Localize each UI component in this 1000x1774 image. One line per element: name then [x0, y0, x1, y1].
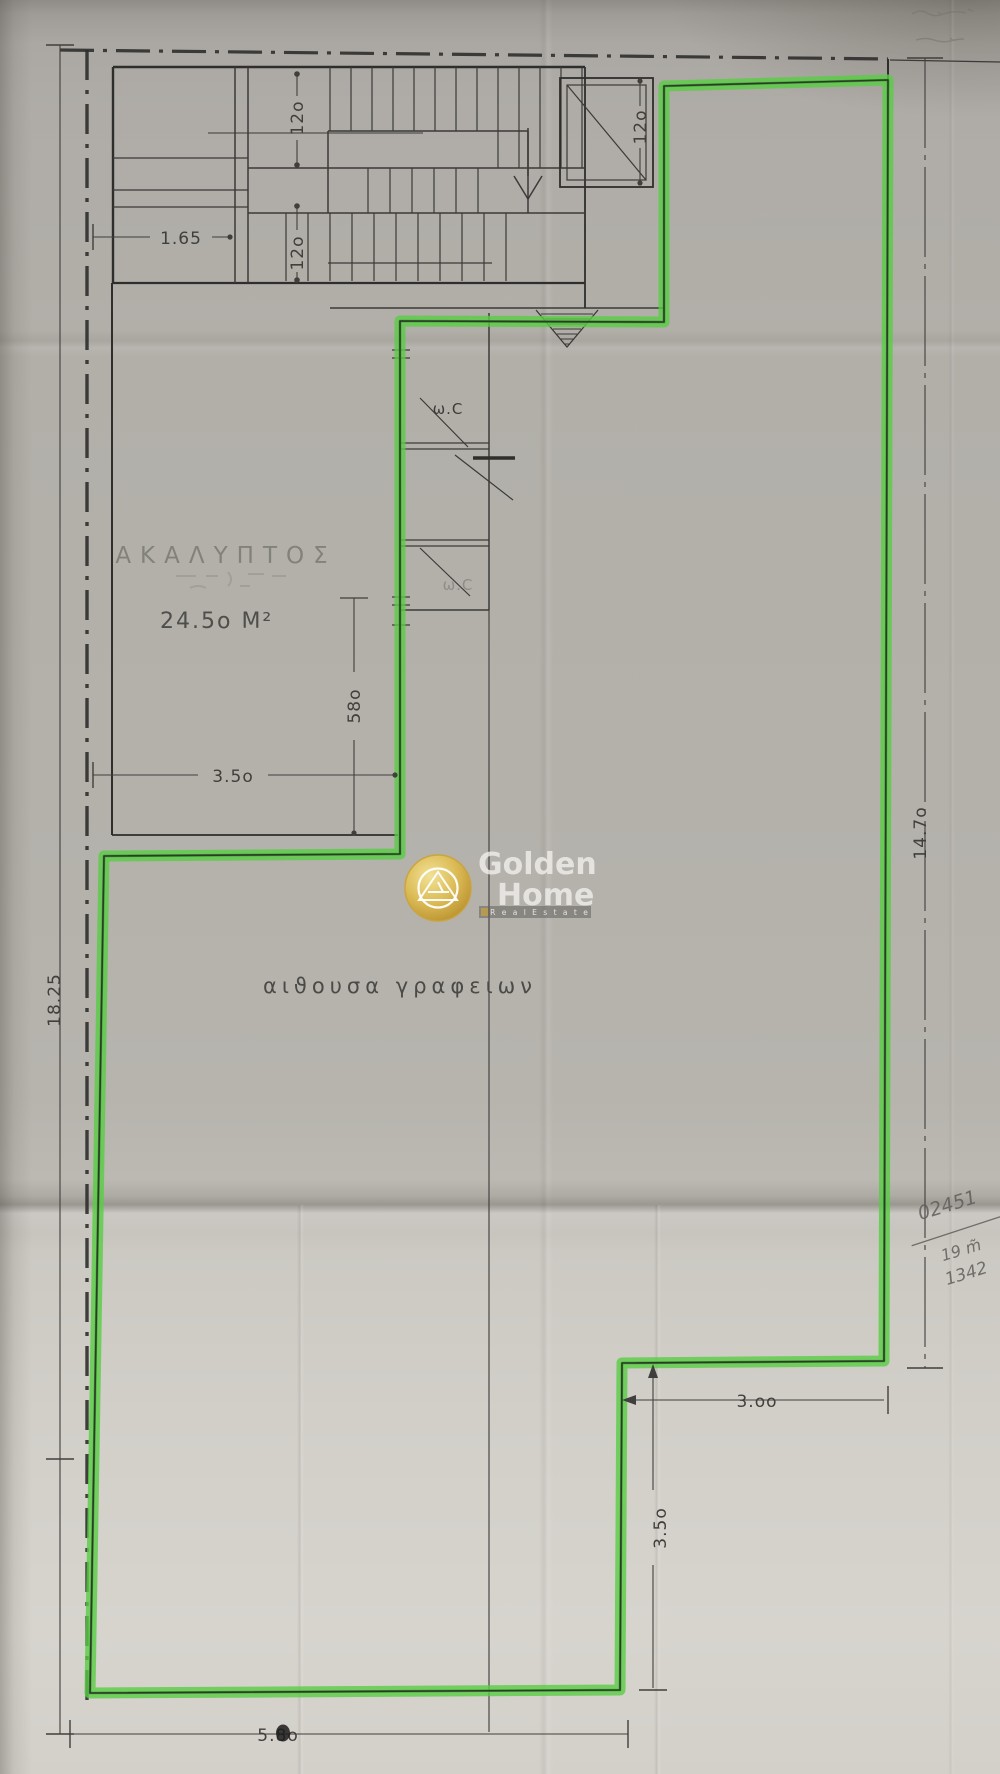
dim-left-total: 18.25 — [45, 973, 65, 1027]
dimension-notch-width: 3.οο — [622, 1386, 888, 1414]
dim-stair-bay: 1.65 — [160, 229, 202, 249]
entry-hatch — [536, 310, 598, 347]
handwritten-notes: 02451 19 m̃ 1342 — [900, 1179, 1000, 1296]
dimension-courtyard-width: 3.5ο — [93, 762, 398, 788]
floor-plan-svg: 18.25 14.7ο 1.65 12ο 12ο — [0, 0, 1000, 1774]
dimension-flight-lower: 12ο — [288, 203, 308, 283]
dimension-notch-depth: 3.5ο — [639, 1364, 671, 1690]
room-label-courtyard: ΑΚΑΛΥΠΤΟΣ — [115, 543, 336, 569]
erased-word — [176, 572, 286, 588]
dimension-flight-upper: 12ο — [288, 71, 308, 168]
dimension-14-70: 14.7ο — [907, 58, 943, 1368]
room-area-courtyard: 24.5ο Μ² — [160, 609, 273, 634]
logo-tagline-mark — [481, 908, 488, 916]
room-label-wc: ω.C — [433, 400, 464, 418]
room-label-wc-faint: ω.C — [443, 576, 474, 594]
dim-notch-width: 3.οο — [736, 1392, 777, 1412]
dimension-courtyard-edge: 58ο — [340, 598, 368, 836]
room-label-office-hall: αιϑουσα γραφειων — [263, 974, 537, 998]
dim-flight-upper: 12ο — [288, 100, 308, 135]
scanned-floor-plan: 18.25 14.7ο 1.65 12ο 12ο — [0, 0, 1000, 1774]
dim-right-total: 14.7ο — [911, 806, 931, 859]
logo-tagline: R e a l E s t a t e — [490, 908, 590, 917]
wc-block — [392, 313, 515, 1732]
dim-flight-lower: 12ο — [288, 235, 308, 270]
ink-blot — [276, 1725, 290, 1742]
dim-courtyard-edge: 58ο — [345, 688, 365, 723]
dim-notch-depth: 3.5ο — [651, 1507, 671, 1548]
dim-courtyard-width: 3.5ο — [212, 767, 253, 787]
pencil-smudges — [912, 9, 973, 42]
dim-elevator: 12ο — [631, 109, 651, 144]
logo-brand-line1: Golden — [478, 847, 597, 882]
dimension-18-25: 18.25 — [45, 45, 74, 1734]
dimension-bottom-width: 5.8ο — [70, 1720, 628, 1748]
golden-home-watermark: Golden Home R e a l E s t a t e — [405, 847, 597, 921]
dimension-elevator: 12ο — [631, 78, 651, 185]
